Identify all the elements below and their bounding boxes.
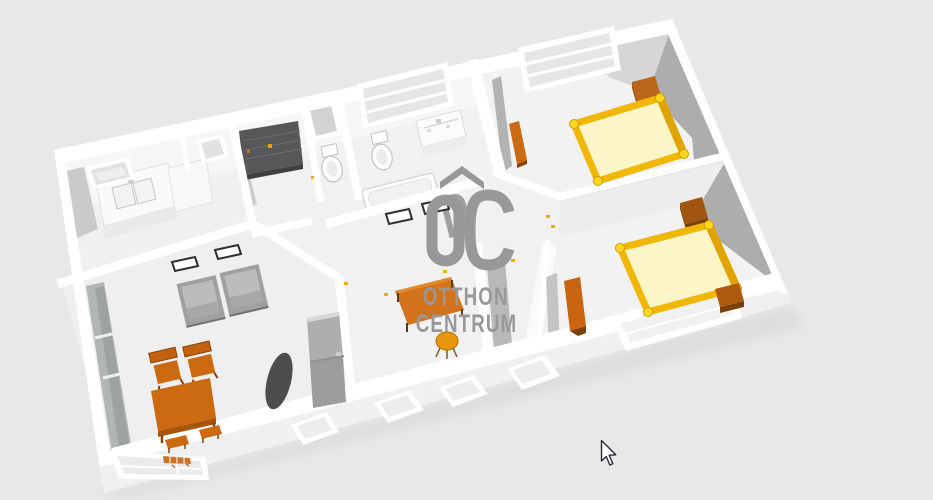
svg-text:CENTRUM: CENTRUM: [416, 309, 518, 337]
svg-text:OTTHON: OTTHON: [423, 282, 509, 310]
